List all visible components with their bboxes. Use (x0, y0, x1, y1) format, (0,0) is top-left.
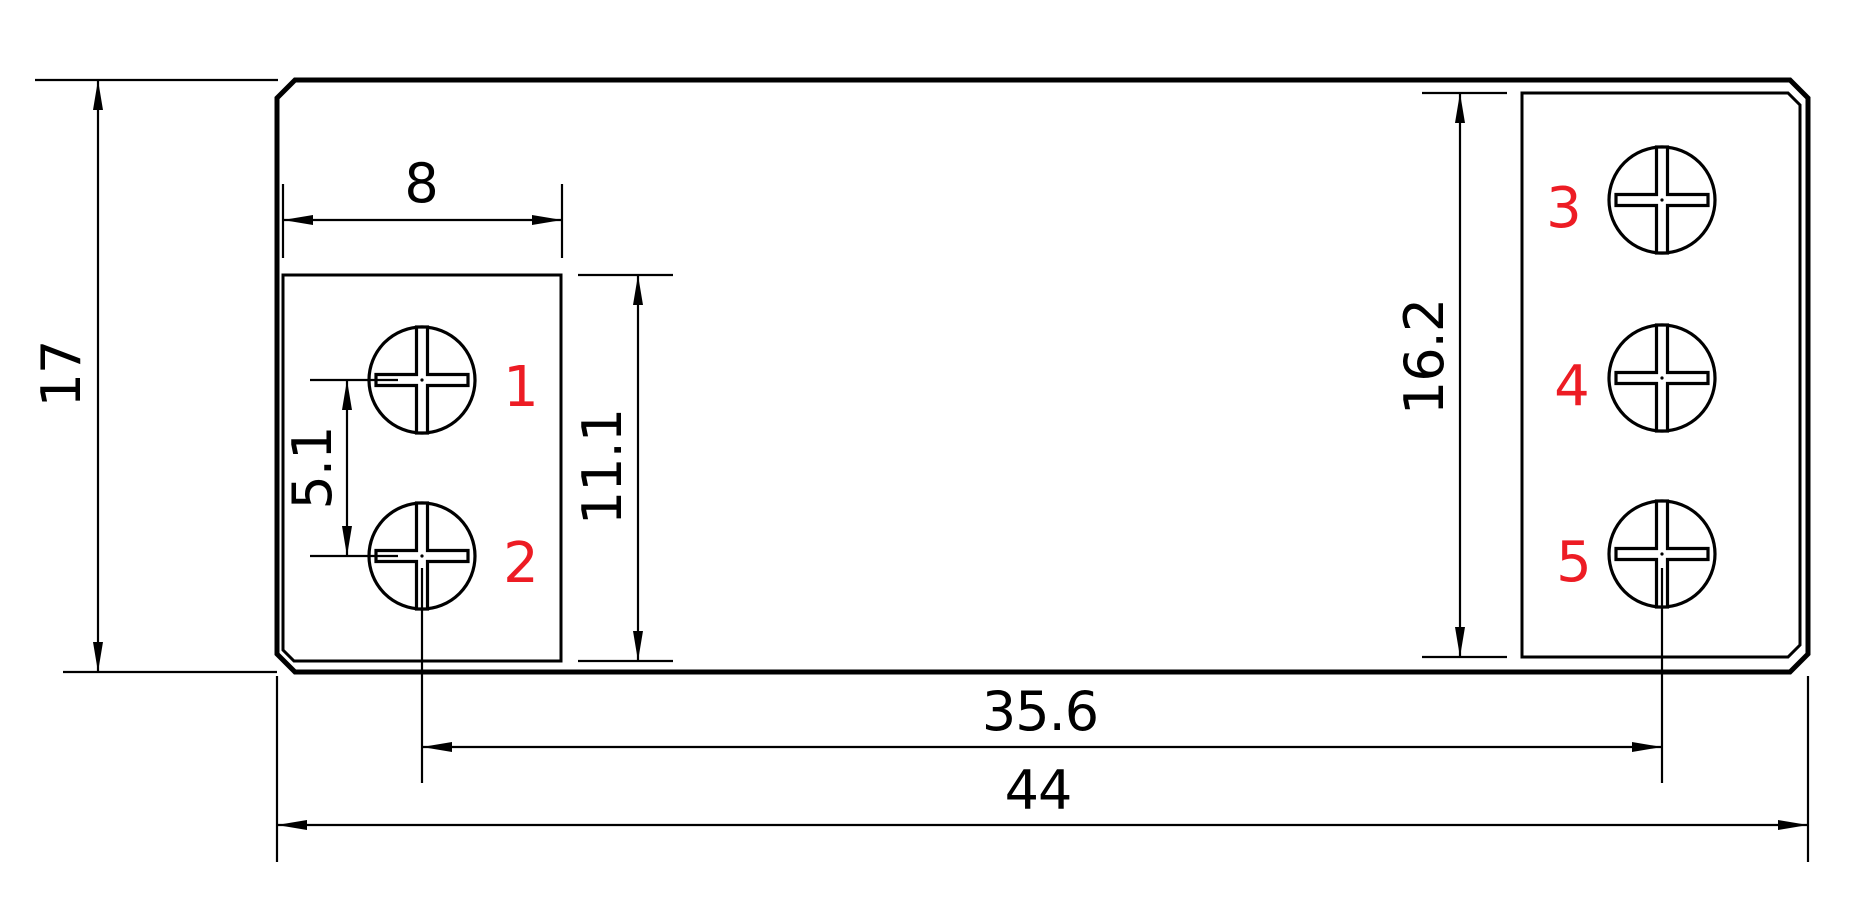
terminal-label-5: 5 (1556, 530, 1592, 595)
technical-drawing-canvas: 17 8 5.1 11.1 16.2 35.6 44 1 2 3 (0, 0, 1866, 901)
dim-text-terminal-pitch: 5.1 (281, 427, 344, 510)
dim-text-right-block-height: 16.2 (1393, 299, 1456, 415)
dim-text-left-block-width: 8 (404, 152, 437, 215)
screw-center-point (420, 554, 423, 557)
screw-terminal-4-icon (1609, 325, 1715, 431)
terminal-label-3: 3 (1546, 176, 1582, 241)
screw-center-point (420, 378, 423, 381)
screw-center-point (1660, 376, 1663, 379)
dim-text-overall-height: 17 (30, 341, 93, 408)
dim-text-terminal-span: 35.6 (982, 680, 1098, 743)
terminal-label-1: 1 (503, 355, 539, 420)
dim-terminal-span: 35.6 (422, 680, 1662, 747)
dim-text-overall-width: 44 (1005, 759, 1072, 822)
screw-center-point (1660, 552, 1663, 555)
terminal-label-2: 2 (503, 531, 539, 596)
screw-terminal-3-icon (1609, 147, 1715, 253)
dim-text-left-block-height: 11.1 (571, 409, 634, 525)
terminal-label-4: 4 (1554, 354, 1590, 419)
dimensioned-part-drawing: 17 8 5.1 11.1 16.2 35.6 44 1 2 3 (0, 0, 1866, 901)
dim-overall-height: 17 (30, 80, 278, 672)
screw-center-point (1660, 198, 1663, 201)
